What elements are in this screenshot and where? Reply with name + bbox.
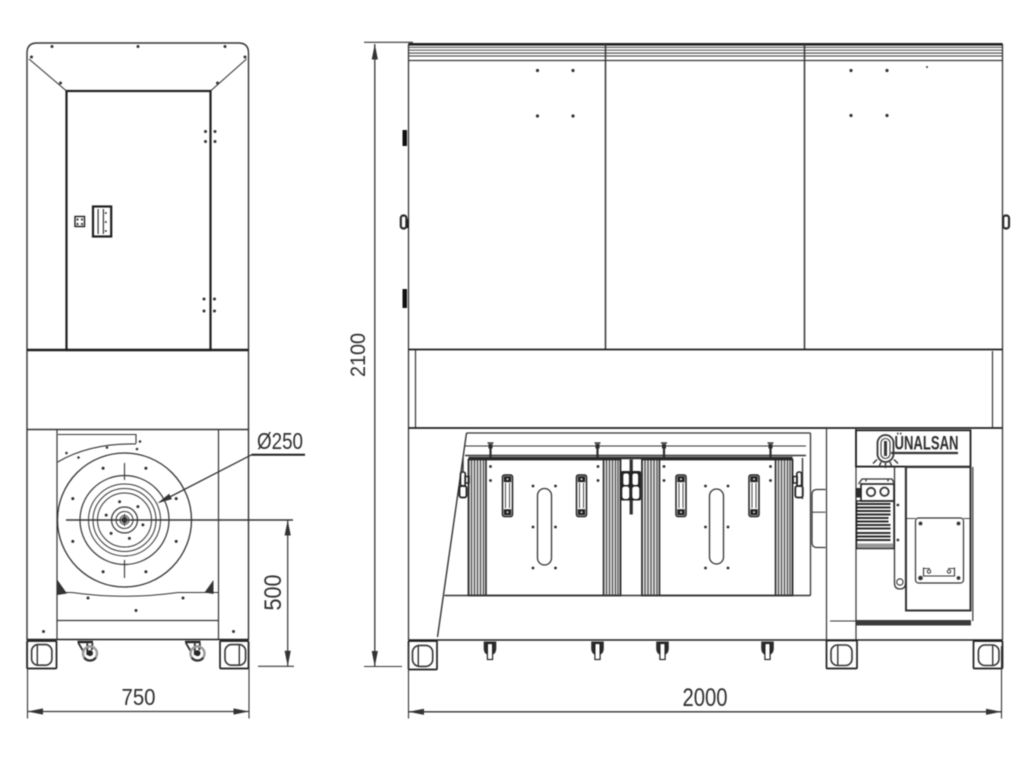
svg-text:500: 500 [260, 575, 287, 611]
svg-text:2000: 2000 [683, 684, 728, 712]
svg-text:ÜNALSAN: ÜNALSAN [895, 434, 959, 455]
svg-text:2100: 2100 [347, 333, 370, 377]
svg-text:Ø250: Ø250 [257, 428, 303, 454]
svg-text:750: 750 [122, 684, 156, 710]
